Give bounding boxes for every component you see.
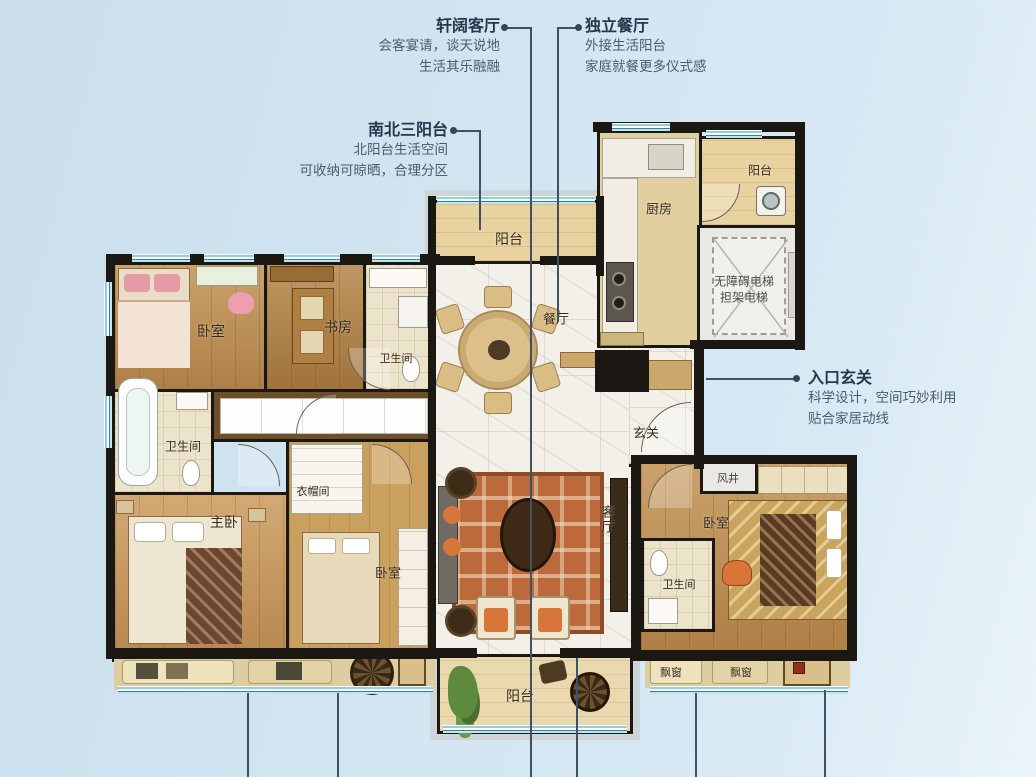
leader-balconies-h <box>456 130 480 132</box>
label-bath-left: 卫生间 <box>165 438 201 455</box>
dining-centerpiece <box>488 340 510 360</box>
stove-burner-2 <box>612 296 626 310</box>
window-left-1 <box>104 282 112 336</box>
leader-dot-living <box>501 24 508 31</box>
callout-living-line2: 生活其乐融融 <box>379 57 501 78</box>
kitchen-lower-cabinet <box>600 332 644 346</box>
window-tl-2 <box>204 254 254 262</box>
wall-nbalcony-2 <box>540 256 602 265</box>
armchair-1-seat <box>484 608 508 632</box>
callout-dining: 独立餐厅 外接生活阳台 家庭就餐更多仪式感 <box>585 16 707 78</box>
callout-dining-line1: 外接生活阳台 <box>585 36 707 57</box>
callout-balconies-line1: 北阳台生活空间 <box>300 140 449 161</box>
study-chair-1 <box>300 296 324 320</box>
bay-left-pillow-3 <box>276 662 302 680</box>
leader-bottom-1 <box>247 693 249 777</box>
label-kitchen: 厨房 <box>646 199 672 218</box>
bay-left-pillow-1 <box>136 663 158 679</box>
wall-chunk-entry <box>595 350 649 392</box>
leader-dot-entry <box>793 375 800 382</box>
dresser-top-left <box>196 266 258 286</box>
bath-right-toilet <box>650 550 668 576</box>
sofa-cushion-2 <box>443 538 461 556</box>
callout-dining-line2: 家庭就餐更多仪式感 <box>585 57 707 78</box>
label-elevator-line2: 担架电梯 <box>720 289 768 306</box>
label-living: 客厅 <box>597 505 616 535</box>
label-vent: 风井 <box>717 470 739 486</box>
master-nightstand-1 <box>116 500 134 514</box>
callout-entry-line2: 贴合家居动线 <box>808 409 957 430</box>
south-balcony-glass <box>443 725 627 733</box>
pillow-pink-2 <box>154 274 180 292</box>
leader-dining-h <box>557 27 577 29</box>
pillow-pink-1 <box>124 274 150 292</box>
wall-rightwing-bottom <box>631 650 857 661</box>
tv-console <box>610 478 628 612</box>
bath-top-shower <box>398 296 428 328</box>
kitchen-sink <box>648 144 684 170</box>
label-entry-hall: 玄关 <box>633 423 659 442</box>
label-study: 书房 <box>324 317 352 337</box>
master-pillow-1 <box>134 522 166 542</box>
dining-chair-1 <box>484 286 512 308</box>
plant-living-2 <box>448 608 474 634</box>
blanket-top-left <box>118 300 190 368</box>
bath-left-tub-inner <box>126 388 150 476</box>
window-tl-3 <box>284 254 340 262</box>
bm-wardrobe <box>398 528 428 646</box>
bay-window-right-glass <box>650 686 848 694</box>
stove-burner-1 <box>612 272 626 286</box>
bath-left-toilet <box>182 460 200 486</box>
leader-bottom-3 <box>576 658 578 777</box>
leader-living-h <box>506 27 531 29</box>
label-elevator-line1: 无障碍电梯 <box>714 273 774 290</box>
study-shelf <box>270 266 334 282</box>
bath-left-sink <box>176 392 208 410</box>
label-dining: 餐厅 <box>543 309 569 328</box>
label-bedroom-bm: 卧室 <box>375 563 401 582</box>
label-north-balcony: 阳台 <box>495 229 523 249</box>
master-nightstand-2 <box>248 508 266 522</box>
bath-top-counter <box>369 268 427 288</box>
master-pillow-2 <box>172 522 204 542</box>
leader-dot-balconies <box>450 127 457 134</box>
label-master: 主卧 <box>210 512 238 532</box>
wall-sbalcony-2 <box>560 648 634 658</box>
label-bay-r2: 飘窗 <box>730 664 752 680</box>
bath-right-sink <box>648 598 678 624</box>
callout-living-title: 轩阔客厅 <box>379 16 501 36</box>
callout-balconies-line2: 可收纳可晾晒，合理分区 <box>300 161 449 182</box>
label-bath-top: 卫生间 <box>380 350 413 366</box>
callout-entry: 入口玄关 科学设计，空间巧妙利用 贴合家居动线 <box>808 368 957 430</box>
leader-bottom-4 <box>695 693 697 777</box>
leader-balconies-v <box>479 130 481 230</box>
bay-right-decor <box>793 662 805 674</box>
leader-bottom-5 <box>824 690 826 777</box>
bm-pillow-2 <box>342 538 370 554</box>
rb-armchair <box>722 560 752 586</box>
wall-rightwing-top <box>631 455 856 464</box>
label-bedroom-r: 卧室 <box>703 513 729 532</box>
label-bay-r1: 飘窗 <box>660 664 682 680</box>
window-tl-4 <box>372 254 420 262</box>
wall-rightwing-right <box>847 455 857 661</box>
callout-balconies: 南北三阳台 北阳台生活空间 可收纳可晾晒，合理分区 <box>300 120 449 182</box>
coffee-table <box>500 498 556 572</box>
wall-sbalcony-1 <box>437 648 477 658</box>
cloakroom-shelves <box>291 444 363 514</box>
washer-drum-icon <box>762 192 780 210</box>
leader-entry-h <box>706 378 796 380</box>
bay-left-pillow-2 <box>166 663 188 679</box>
rb-pillow-2 <box>826 548 842 578</box>
bay-window-left-glass <box>118 686 433 694</box>
chair-pink <box>228 292 254 314</box>
label-bedroom-tl: 卧室 <box>197 321 225 341</box>
callout-entry-line1: 科学设计，空间巧妙利用 <box>808 388 957 409</box>
dining-chair-2 <box>484 392 512 414</box>
wall-nbalcony-1 <box>431 256 475 265</box>
bay-side-table <box>398 656 426 686</box>
door-master <box>238 444 280 486</box>
leader-bottom-2 <box>337 693 339 777</box>
label-bath-r: 卫生间 <box>663 576 696 592</box>
rb-wardrobe <box>758 466 850 494</box>
callout-balconies-title: 南北三阳台 <box>300 120 449 140</box>
callout-dining-title: 独立餐厅 <box>585 16 707 36</box>
wall-greatroom-rightwing <box>631 460 641 658</box>
window-kitchen-top <box>612 123 670 131</box>
north-balcony-glass <box>437 196 595 204</box>
label-cloakroom: 衣帽间 <box>297 483 330 499</box>
callout-living-line1: 会客宴请，谈天说地 <box>379 36 501 57</box>
study-chair-2 <box>300 330 324 354</box>
armchair-2-seat <box>538 608 562 632</box>
wall-leftwing-greatroom <box>428 196 436 658</box>
leader-dining-v <box>557 27 559 322</box>
callout-living: 轩阔客厅 会客宴请，谈天说地 生活其乐融融 <box>379 16 501 78</box>
window-nebalcony-top <box>706 130 762 138</box>
entry-shoe-cabinet <box>648 360 692 390</box>
bm-pillow-1 <box>308 538 336 554</box>
wall-right-top-wing <box>795 128 805 350</box>
kitchen-stove <box>606 262 634 322</box>
leader-living-v <box>530 27 532 777</box>
leader-dot-dining <box>575 24 582 31</box>
plant-living-1 <box>448 470 474 496</box>
wall-elevator-bottom <box>690 340 805 349</box>
rb-pillow-1 <box>826 510 842 540</box>
window-tl-1 <box>132 254 190 262</box>
callout-entry-title: 入口玄关 <box>808 368 957 388</box>
window-left-2 <box>104 396 112 448</box>
wall-entry-right <box>694 345 704 469</box>
rb-bed-runner <box>760 514 816 606</box>
wall-bottom-left-wing <box>106 648 440 659</box>
label-ne-balcony: 阳台 <box>748 162 772 179</box>
master-throw <box>186 548 242 644</box>
sofa-cushion-1 <box>443 506 461 524</box>
floorplan-poster: 轩阔客厅 会客宴请，谈天说地 生活其乐融融 独立餐厅 外接生活阳台 家庭就餐更多… <box>0 0 1036 777</box>
